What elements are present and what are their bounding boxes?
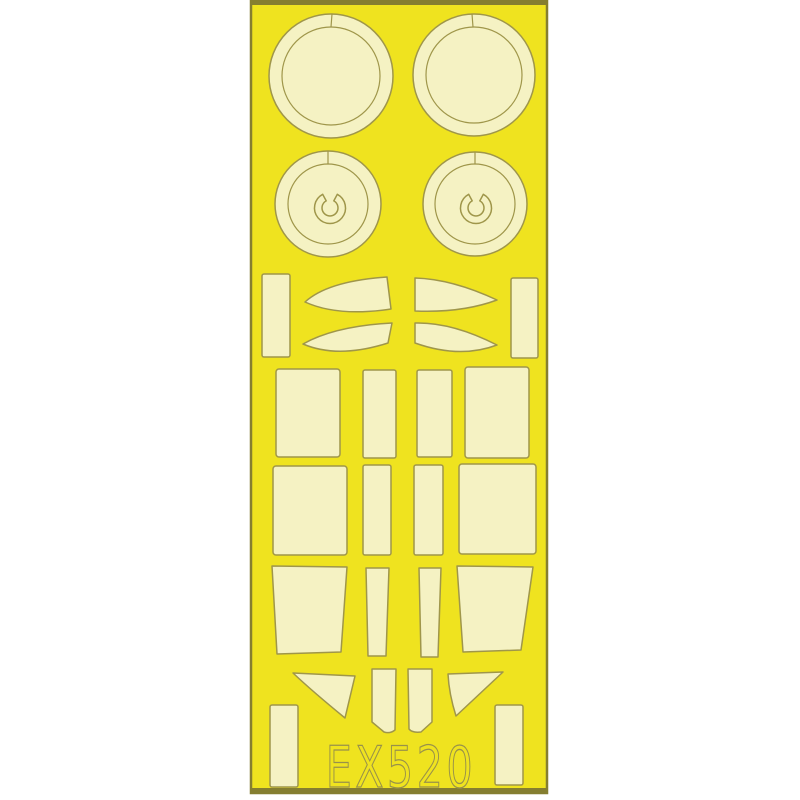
mask-strip-row3-left <box>262 274 290 357</box>
mask-rect-row4-col1 <box>276 369 340 457</box>
mask-shield-right <box>408 669 432 732</box>
mask-strip-row3-right <box>511 278 538 358</box>
mask-circle-u-left <box>275 151 381 257</box>
mask-rect-row5-col4 <box>459 464 536 554</box>
mask-circle-u-right <box>423 152 527 256</box>
mask-shield-left <box>372 669 396 733</box>
mask-strip-bottom-left <box>270 705 298 787</box>
mask-rect-row4-col4 <box>465 367 529 458</box>
mask-rect-row5-col1 <box>273 466 347 555</box>
mask-rect-row4-col2 <box>363 370 396 458</box>
mask-rect-row4-col3 <box>417 370 452 457</box>
mask-trapezoid-row6-col1 <box>272 566 347 654</box>
mask-sheet-scan: EX520 <box>0 0 800 800</box>
mask-circle-large-left <box>269 14 393 138</box>
mask-circle-large-right <box>413 14 535 136</box>
product-image: EX520 <box>0 0 800 800</box>
mask-trapezoid-row6-col2 <box>366 568 389 656</box>
mask-rect-row5-col2 <box>363 465 391 555</box>
sheet-top-edge <box>251 1 547 5</box>
mask-rect-row5-col3 <box>414 465 443 555</box>
mask-strip-bottom-right <box>495 705 523 785</box>
sheet-code-text: EX520 <box>326 734 476 800</box>
mask-trapezoid-row6-col3 <box>419 568 441 657</box>
mask-trapezoid-row6-col4 <box>457 566 533 652</box>
